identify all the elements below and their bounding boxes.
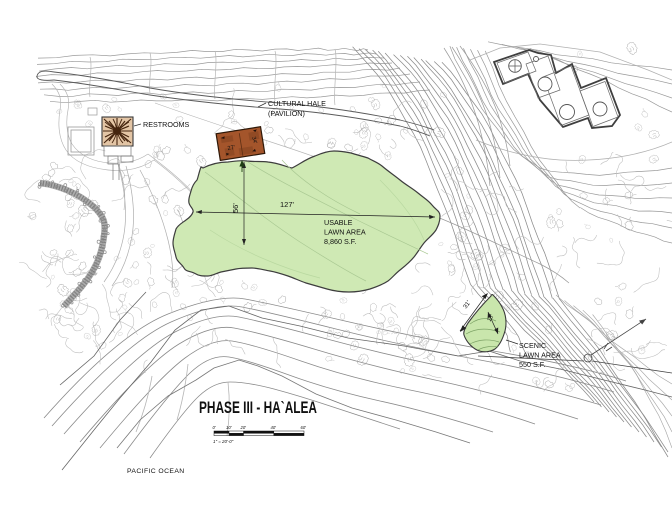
svg-text:60': 60' bbox=[301, 425, 307, 430]
svg-text:1" = 20'-0": 1" = 20'-0" bbox=[213, 439, 234, 444]
svg-text:CULTURAL HALE: CULTURAL HALE bbox=[268, 99, 326, 108]
svg-text:PHASE III - HA`ALEA: PHASE III - HA`ALEA bbox=[199, 399, 317, 417]
svg-text:PACIFIC OCEAN: PACIFIC OCEAN bbox=[127, 468, 185, 475]
svg-text:127': 127' bbox=[280, 200, 295, 209]
svg-text:40': 40' bbox=[271, 425, 277, 430]
svg-text:LAWN AREA: LAWN AREA bbox=[324, 228, 366, 237]
svg-text:USABLE: USABLE bbox=[324, 218, 353, 227]
svg-text:(PAVILION): (PAVILION) bbox=[268, 109, 305, 118]
svg-text:8,860 S.F.: 8,860 S.F. bbox=[324, 237, 356, 246]
svg-text:RESTROOMS: RESTROOMS bbox=[143, 120, 190, 129]
svg-text:550 S.F.: 550 S.F. bbox=[519, 360, 545, 369]
svg-text:SCENIC: SCENIC bbox=[519, 341, 546, 350]
svg-text:27': 27' bbox=[227, 145, 235, 152]
svg-text:20': 20' bbox=[240, 425, 247, 430]
svg-text:0': 0' bbox=[213, 425, 216, 430]
svg-text:10': 10' bbox=[226, 425, 232, 430]
svg-text:56': 56' bbox=[231, 203, 240, 213]
